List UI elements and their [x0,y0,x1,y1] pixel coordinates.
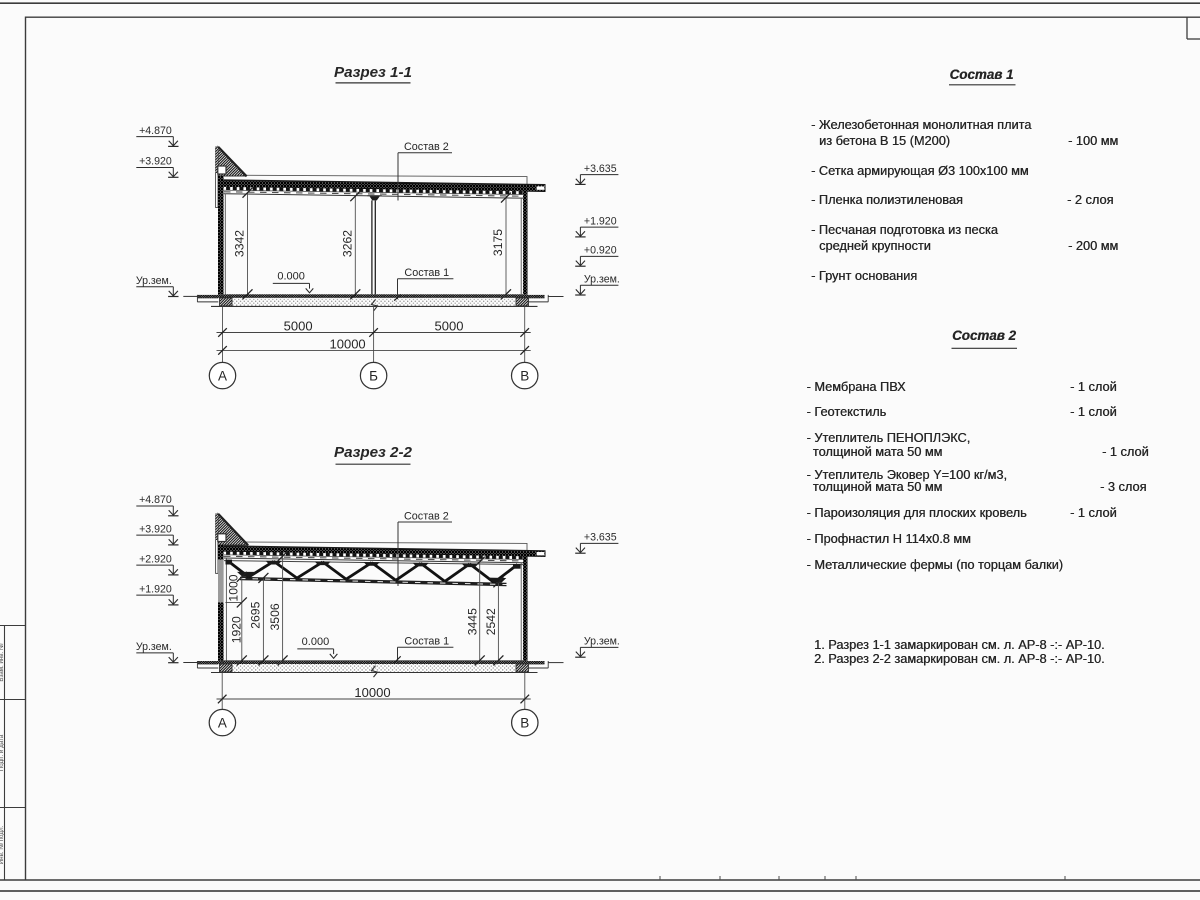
svg-text:2542: 2542 [484,608,498,635]
svg-text:+3.635: +3.635 [584,163,617,175]
svg-text:+0.920: +0.920 [584,245,617,257]
svg-text:+3.920: +3.920 [139,523,172,535]
svg-text:3175: 3175 [491,229,505,256]
svg-text:3445: 3445 [466,608,480,635]
svg-text:Взам. инв. №: Взам. инв. № [0,643,5,682]
svg-text:1000: 1000 [227,574,241,601]
svg-text:+4.870: +4.870 [139,125,172,137]
svg-text:Разрез 2-2: Разрез 2-2 [334,444,413,461]
svg-text:2695: 2695 [249,601,263,628]
svg-text:Ур.зем.: Ур.зем. [136,275,172,287]
svg-text:Состав 2: Состав 2 [404,141,449,153]
svg-text:Ур.зем.: Ур.зем. [584,273,620,285]
svg-text:Ур.зем.: Ур.зем. [584,636,620,648]
svg-text:+3.635: +3.635 [584,532,617,544]
svg-text:+4.870: +4.870 [139,494,172,506]
svg-text:Состав 1: Состав 1 [404,636,449,648]
svg-text:1920: 1920 [230,616,244,643]
svg-text:+3.920: +3.920 [139,156,172,168]
svg-text:В: В [520,715,529,730]
svg-text:5000: 5000 [284,318,313,333]
svg-text:Разрез 1-1: Разрез 1-1 [334,64,412,81]
svg-text:+1.920: +1.920 [584,215,617,227]
svg-text:Ур.зем.: Ур.зем. [136,641,172,653]
svg-text:3342: 3342 [233,230,247,257]
svg-text:3506: 3506 [268,603,282,630]
svg-text:Подп. и дата: Подп. и дата [0,734,5,771]
svg-text:5000: 5000 [435,318,464,333]
svg-text:Состав 1: Состав 1 [404,267,449,279]
svg-text:10000: 10000 [354,685,390,700]
svg-text:А: А [218,368,227,383]
svg-text:+2.920: +2.920 [139,553,172,565]
svg-text:Инв. № подл.: Инв. № подл. [0,825,5,864]
svg-text:А: А [218,715,227,730]
svg-text:0.000: 0.000 [302,636,330,648]
svg-text:+1.920: +1.920 [139,583,172,595]
svg-text:Б: Б [369,368,378,383]
svg-text:10000: 10000 [330,336,366,351]
svg-text:3262: 3262 [340,230,354,257]
svg-text:В: В [520,368,529,383]
svg-text:Состав 2: Состав 2 [404,510,449,522]
svg-text:0.000: 0.000 [277,271,305,283]
